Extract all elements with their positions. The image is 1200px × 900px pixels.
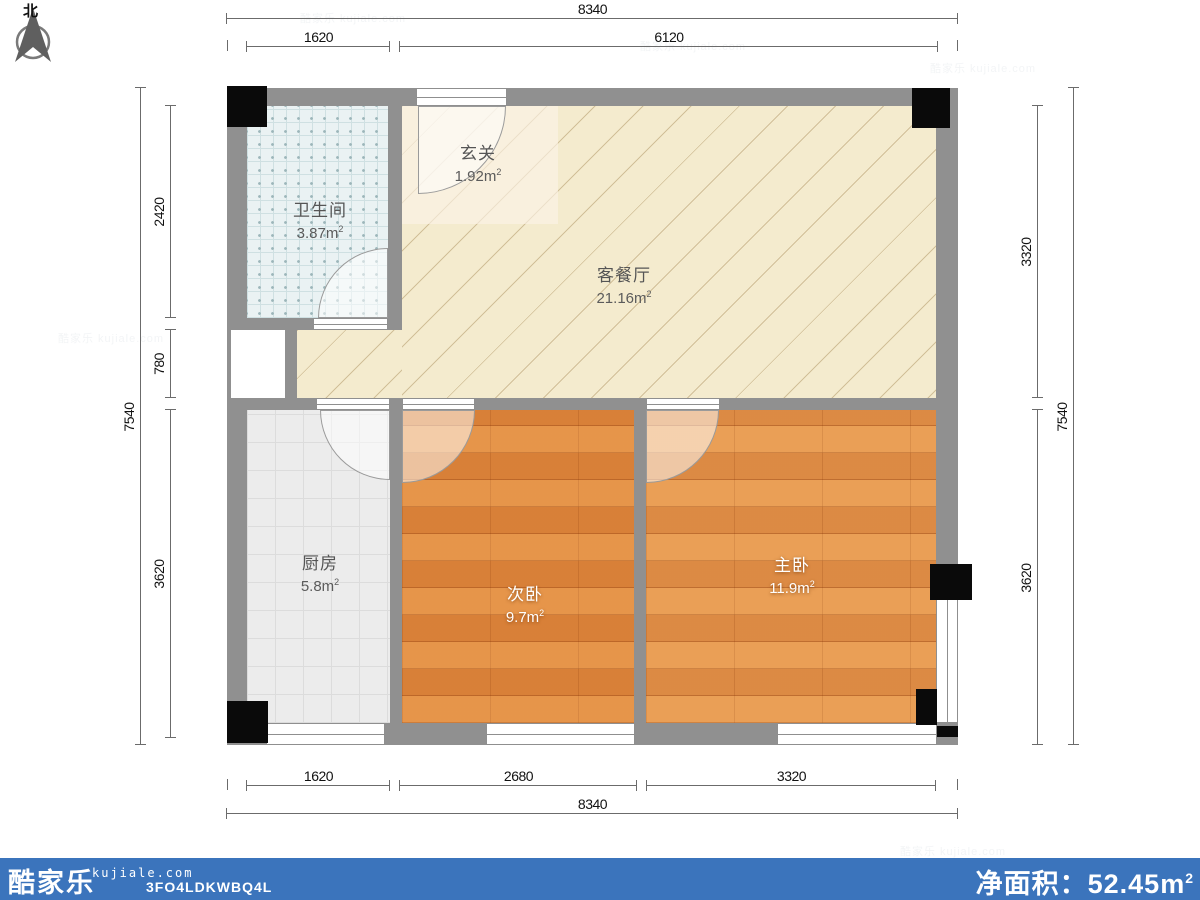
column-top-left [227, 86, 267, 127]
second-bedroom-door-sill [402, 398, 475, 410]
dim-top-total: 8340 [227, 18, 958, 19]
room-label-master-bedroom: 主卧 11.9m2 [769, 551, 815, 597]
bathroom-door-sill [313, 318, 388, 330]
column-right-mid [930, 564, 972, 600]
dim-bottom-total: 8340 [227, 813, 958, 814]
wall-left-lower [227, 398, 247, 745]
dim-tick [227, 40, 228, 51]
footer-bar: 酷家乐 kujiale.com 3FO4LDKWBQ4L 净面积：52.45m2 [0, 858, 1200, 900]
dim-tick [227, 779, 228, 790]
column-bottom-left [227, 701, 268, 743]
kujiale-domain: kujiale.com [92, 866, 193, 880]
watermark: 酷家乐 kujiale.com [900, 843, 1006, 859]
dim-bottom-2680: 2680 [400, 785, 637, 786]
room-label-bathroom: 卫生间 3.87m2 [293, 196, 347, 242]
dim-right-total: 7540 [1073, 88, 1074, 745]
dim-tick [957, 40, 958, 51]
column-top-right [912, 88, 950, 128]
wall-shaft-left [227, 330, 231, 398]
room-label-second-bedroom: 次卧 9.7m2 [506, 580, 544, 626]
watermark: 酷家乐 kujiale.com [930, 60, 1036, 76]
kujiale-logo: 酷家乐 [8, 861, 95, 900]
wall-bedroom-divider [634, 398, 646, 723]
second-bedroom-window [486, 723, 635, 745]
column-right-corner [937, 726, 958, 737]
entry-door-sill [416, 88, 507, 106]
plan-code: 3FO4LDKWBQ4L [146, 879, 272, 895]
wall-bathroom-right [388, 88, 402, 330]
floorplan-canvas: 北 酷家乐 kujiale.com 酷家乐 kujiale.com 酷家乐 ku… [0, 0, 1200, 900]
wall-top [227, 88, 958, 106]
dim-right-3620: 3620 [1037, 410, 1038, 745]
dim-bottom-3320: 3320 [647, 785, 936, 786]
net-area: 净面积：52.45m2 [976, 862, 1194, 900]
dim-left-780: 780 [170, 330, 171, 398]
north-label: 北 [23, 0, 38, 21]
north-arrow: 北 [6, 0, 66, 66]
watermark: 酷家乐 kujiale.com [58, 330, 164, 346]
dim-tick [957, 779, 958, 790]
master-bedroom-window-right [936, 583, 958, 723]
kitchen-window [266, 723, 385, 745]
dim-top-1620: 1620 [247, 46, 390, 47]
dim-left-3620: 3620 [170, 410, 171, 738]
master-bedroom-window-bottom [777, 723, 937, 745]
dim-right-3320: 3320 [1037, 106, 1038, 398]
dim-top-6120: 6120 [400, 46, 938, 47]
wall-left-upper [227, 106, 247, 330]
wall-kitchen-bedroom [390, 410, 402, 723]
wall-shaft-right [285, 330, 297, 398]
room-label-hallway: 玄关 1.92m2 [455, 139, 502, 185]
room-label-kitchen: 厨房 5.8m2 [301, 549, 339, 595]
dim-left-total: 7540 [140, 88, 141, 745]
dim-left-2420: 2420 [170, 106, 171, 318]
master-bedroom-door-sill [646, 398, 720, 410]
column-bottom-right-inner [916, 689, 937, 725]
living-dining-floor-corridor [297, 330, 402, 398]
room-label-living: 客餐厅 21.16m2 [596, 261, 651, 307]
kitchen-door-sill [316, 398, 390, 410]
dim-bottom-1620: 1620 [247, 785, 390, 786]
